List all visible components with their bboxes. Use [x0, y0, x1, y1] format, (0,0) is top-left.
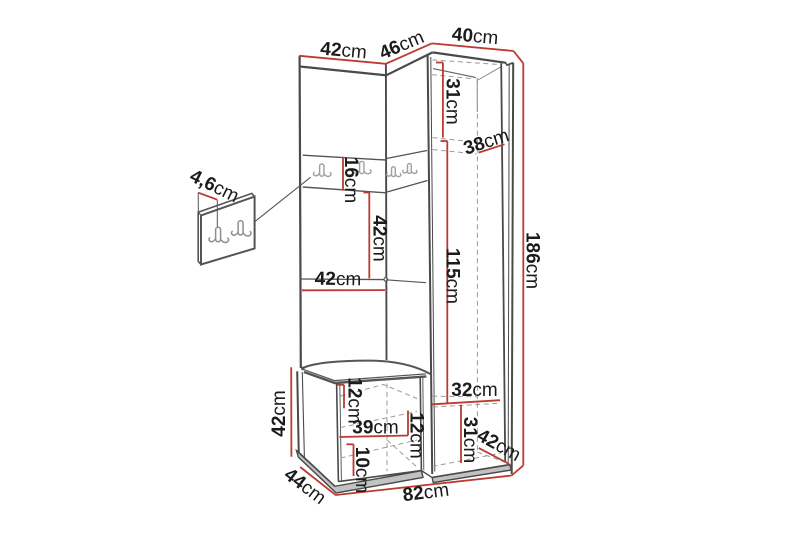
svg-text:42cm: 42cm: [319, 39, 367, 64]
svg-text:42cm: 42cm: [368, 215, 389, 261]
svg-text:32cm: 32cm: [451, 380, 497, 401]
svg-text:16cm: 16cm: [340, 157, 361, 203]
svg-text:42cm: 42cm: [315, 269, 362, 291]
svg-text:12cm: 12cm: [405, 412, 426, 458]
svg-text:31cm: 31cm: [441, 78, 462, 124]
svg-text:186cm: 186cm: [522, 232, 543, 289]
svg-text:115cm: 115cm: [442, 248, 463, 304]
svg-text:40cm: 40cm: [451, 24, 499, 49]
svg-text:42cm: 42cm: [269, 390, 290, 436]
svg-text:10cm: 10cm: [351, 447, 372, 493]
svg-text:39cm: 39cm: [352, 418, 398, 439]
